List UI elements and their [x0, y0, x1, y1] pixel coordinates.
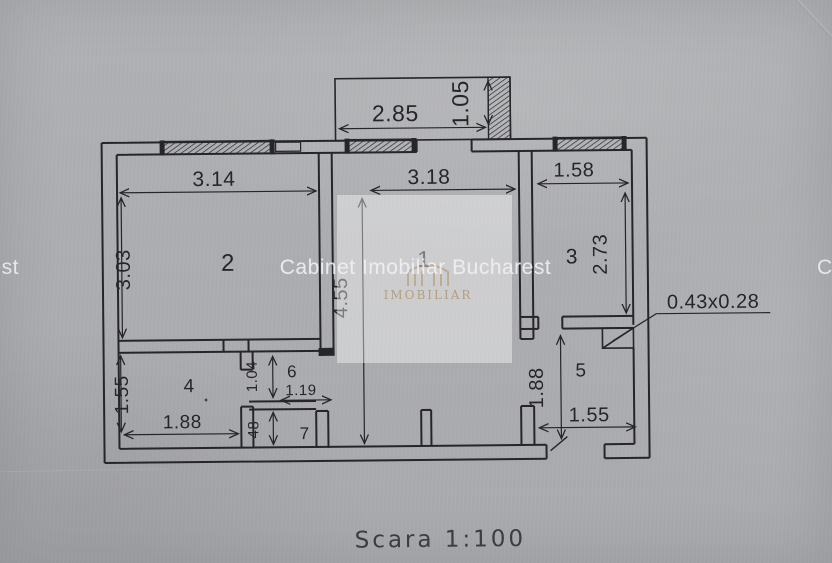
room-7-label: 7	[300, 424, 310, 443]
dim-hall-height: 1.04	[244, 361, 261, 392]
dim-room3-width: 1.58	[553, 159, 594, 181]
watermark-logo-text: IMOBILIAR	[383, 288, 473, 302]
scale-label: Scara 1:100	[355, 526, 527, 554]
wall-foot-jamb	[319, 348, 334, 356]
entrance-door-swing	[550, 437, 567, 451]
dim-room2-width: 3.14	[192, 168, 235, 191]
watermark-text-center: Cabinet Imobiliar Bucharest	[280, 256, 551, 280]
dim-room3-height: 2.73	[589, 234, 611, 275]
watermark-text-left-fragment: Cabinet Imobiliar Bucharest	[0, 256, 19, 280]
ink-speck	[205, 399, 208, 402]
room-6-label: 6	[287, 362, 297, 381]
window-sill-room2	[276, 142, 301, 151]
dim-balcony-width: 2.85	[372, 100, 419, 126]
dim-room5-width: 1.55	[569, 404, 610, 426]
dim-closet-height: 48	[245, 421, 262, 439]
balcony-wall-column-hatch	[488, 77, 511, 139]
room-2-label: 2	[221, 250, 235, 277]
window-room3	[557, 137, 624, 151]
room-5-label: 5	[575, 360, 586, 381]
dim-room1-width: 3.18	[407, 166, 450, 189]
dim-niche-size: 0.43x0.28	[667, 291, 760, 314]
dim-room4-width: 1.88	[163, 412, 202, 433]
dim-room4-height: 1.55	[112, 375, 133, 414]
watermark-text-right-fragment: Cabinet Imobiliar Bucharest	[817, 256, 832, 280]
room-3-label: 3	[566, 245, 578, 268]
dim-room2-height: 3.03	[113, 249, 135, 290]
dim-balcony-depth: 1.05	[447, 80, 473, 127]
niche-leader-line	[612, 313, 770, 342]
balcony-outline	[335, 77, 511, 141]
window-room1	[349, 139, 414, 153]
dim-room5-height: 1.88	[526, 367, 548, 408]
dim-hall-width: 1.19	[285, 382, 316, 399]
window-room2	[164, 140, 272, 154]
scanned-floorplan-page: 2.85 1.05 3.14 3.18 1.58 3.03 4.55 2.73 …	[0, 0, 832, 563]
room-4-label: 4	[184, 376, 195, 397]
